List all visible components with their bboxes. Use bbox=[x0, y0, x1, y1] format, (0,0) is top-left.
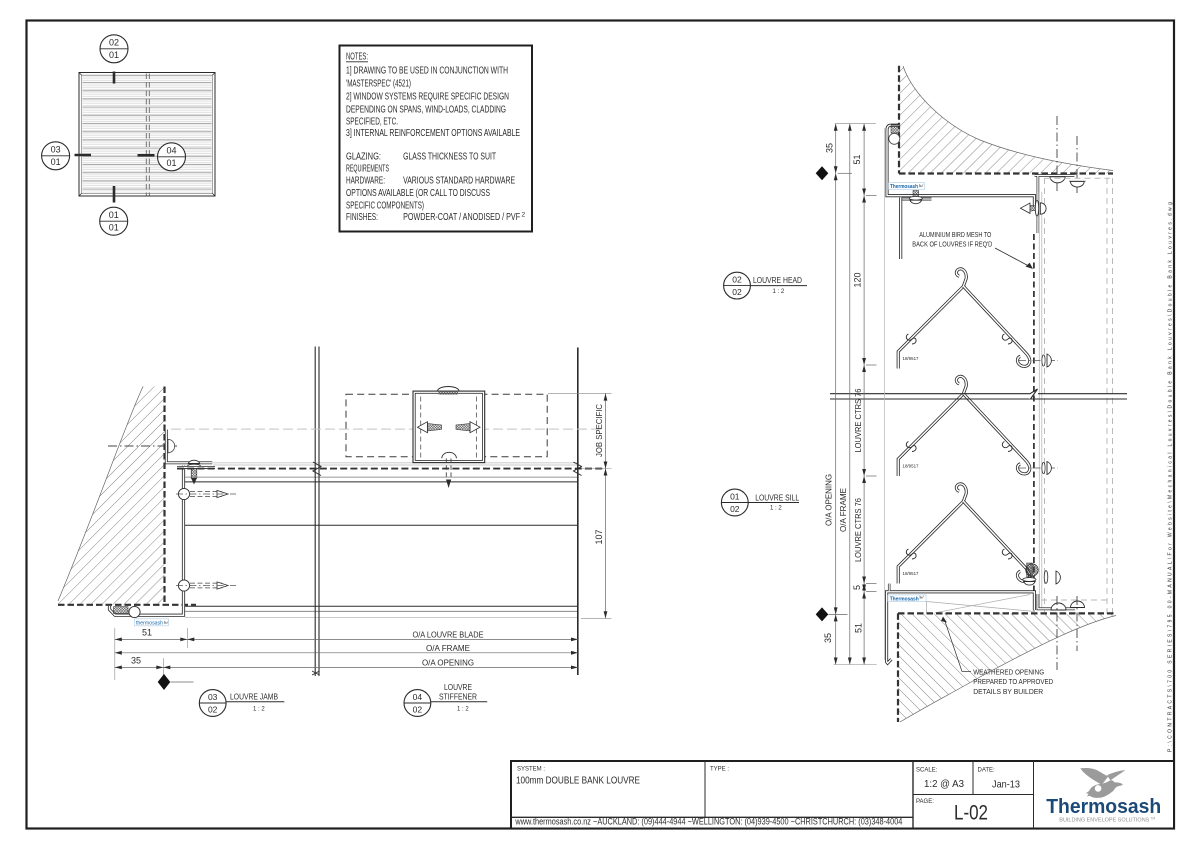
svg-text:REQUIREMENTS: REQUIREMENTS bbox=[346, 164, 389, 175]
svg-text:LOUVRE CTRS 76: LOUVRE CTRS 76 bbox=[853, 388, 863, 452]
svg-text:03: 03 bbox=[51, 145, 61, 155]
svg-text:NOTES:: NOTES: bbox=[346, 52, 368, 63]
svg-text:FINISHES:: FINISHES: bbox=[346, 212, 378, 223]
svg-text:02: 02 bbox=[732, 274, 742, 284]
svg-text:LOUVRE CTRS 76: LOUVRE CTRS 76 bbox=[853, 498, 863, 562]
svg-text:OPTIONS AVAILABLE (OR CALL TO: OPTIONS AVAILABLE (OR CALL TO DISCUSS bbox=[346, 188, 490, 199]
svg-text:thermosash: thermosash bbox=[136, 621, 163, 627]
svg-text:Thermosash: Thermosash bbox=[890, 184, 918, 190]
svg-text:02: 02 bbox=[208, 704, 218, 714]
svg-text:1 : 2: 1 : 2 bbox=[770, 506, 782, 512]
svg-text:SYSTEM :: SYSTEM : bbox=[517, 767, 545, 773]
svg-text:L-02: L-02 bbox=[954, 802, 988, 825]
svg-text:1 : 2: 1 : 2 bbox=[773, 289, 785, 295]
svg-text:JOB SPECIFIC: JOB SPECIFIC bbox=[594, 404, 604, 457]
svg-text:O/A LOUVRE BLADE: O/A LOUVRE BLADE bbox=[413, 629, 484, 639]
svg-text:03: 03 bbox=[208, 692, 218, 702]
svg-text:120: 120 bbox=[853, 272, 863, 287]
svg-text:1 : 2: 1 : 2 bbox=[457, 707, 469, 713]
svg-text:PREPARED TO APPROVED: PREPARED TO APPROVED bbox=[973, 677, 1053, 686]
svg-text:GLAZING:: GLAZING: bbox=[346, 152, 381, 163]
svg-text:DATE:: DATE: bbox=[978, 768, 996, 774]
svg-text:BUILDING ENVELOPE SOLUTIONS: BUILDING ENVELOPE SOLUTIONS bbox=[1059, 818, 1150, 824]
svg-text:LOUVRE: LOUVRE bbox=[444, 682, 472, 692]
svg-text:LOUVRE JAMB: LOUVRE JAMB bbox=[230, 691, 278, 701]
svg-text:Jan-13: Jan-13 bbox=[992, 779, 1020, 791]
svg-text:51: 51 bbox=[854, 623, 864, 633]
svg-text:VARIOUS STANDARD HARDWARE: VARIOUS STANDARD HARDWARE bbox=[403, 175, 515, 186]
svg-text:02: 02 bbox=[732, 287, 742, 297]
svg-text:HARDWARE:: HARDWARE: bbox=[346, 175, 385, 186]
svg-text:LOUVRE SILL: LOUVRE SILL bbox=[755, 492, 799, 502]
svg-text:TM: TM bbox=[1151, 817, 1156, 821]
svg-text:04: 04 bbox=[413, 692, 423, 702]
svg-text:P:\CONTRACTS\700 SERIES\795.00: P:\CONTRACTS\700 SERIES\795.00-MANUAL\Fo… bbox=[1168, 200, 1174, 752]
svg-text:35: 35 bbox=[131, 655, 141, 665]
svg-text:01: 01 bbox=[109, 223, 119, 233]
svg-text:02: 02 bbox=[730, 504, 740, 514]
svg-text:02: 02 bbox=[413, 704, 423, 714]
svg-text:O/A FRAME: O/A FRAME bbox=[838, 488, 848, 532]
svg-text:04: 04 bbox=[166, 146, 176, 156]
svg-text:2: 2 bbox=[522, 211, 526, 218]
svg-text:100mm DOUBLE BANK LOUVRE: 100mm DOUBLE BANK LOUVRE bbox=[516, 775, 640, 787]
svg-text:35: 35 bbox=[825, 143, 835, 153]
svg-text:18/9517: 18/9517 bbox=[903, 464, 919, 469]
svg-text:WEATHERED OPENING: WEATHERED OPENING bbox=[973, 668, 1044, 677]
svg-text:O/A OPENING: O/A OPENING bbox=[824, 474, 834, 526]
svg-text:35: 35 bbox=[823, 633, 833, 643]
svg-text:1 : 2: 1 : 2 bbox=[253, 707, 265, 713]
svg-text:BACK OF LOUVRES IF REQ'D: BACK OF LOUVRES IF REQ'D bbox=[912, 239, 992, 248]
svg-text:SPECIFIC COMPONENTS): SPECIFIC COMPONENTS) bbox=[346, 201, 424, 212]
svg-text:SCALE:: SCALE: bbox=[916, 768, 938, 774]
svg-text:01: 01 bbox=[109, 50, 119, 60]
svg-text:1:2 @ A3: 1:2 @ A3 bbox=[924, 778, 964, 790]
svg-text:TYPE :: TYPE : bbox=[710, 767, 729, 773]
svg-text:51: 51 bbox=[852, 154, 862, 164]
svg-text:18/9517: 18/9517 bbox=[903, 356, 919, 361]
svg-text:O/A OPENING: O/A OPENING bbox=[422, 657, 474, 667]
svg-text:02: 02 bbox=[109, 38, 119, 48]
svg-text:18/9517: 18/9517 bbox=[903, 571, 919, 576]
svg-text:ALUMINIUM BIRD MESH TO: ALUMINIUM BIRD MESH TO bbox=[919, 230, 991, 239]
svg-text:01: 01 bbox=[730, 491, 740, 501]
svg-text:01: 01 bbox=[109, 210, 119, 220]
svg-text:O/A FRAME: O/A FRAME bbox=[426, 643, 470, 653]
svg-text:LOUVRE HEAD: LOUVRE HEAD bbox=[753, 275, 802, 285]
svg-text:DETAILS BY BUILDER: DETAILS BY BUILDER bbox=[973, 687, 1043, 696]
svg-text:www.thermosash.co.nz ~AUCKLAN: www.thermosash.co.nz ~AUCKLAND: (09)444-… bbox=[515, 817, 903, 827]
svg-text:Thermosash: Thermosash bbox=[890, 596, 919, 602]
svg-text:01: 01 bbox=[166, 158, 176, 168]
svg-text:POWDER-COAT / ANODISED / PVF: POWDER-COAT / ANODISED / PVF bbox=[403, 212, 520, 223]
svg-text:PAGE:: PAGE: bbox=[916, 799, 934, 805]
svg-text:107: 107 bbox=[594, 529, 604, 544]
svg-text:Thermosash: Thermosash bbox=[1046, 795, 1161, 818]
svg-text:SPECIFIED, ETC.: SPECIFIED, ETC. bbox=[346, 116, 398, 127]
svg-text:01: 01 bbox=[51, 157, 61, 167]
svg-text:1] DRAWING TO BE USED IN CONJU: 1] DRAWING TO BE USED IN CONJUNCTION WIT… bbox=[346, 66, 508, 77]
svg-text:'MASTERSPEC' (4521): 'MASTERSPEC' (4521) bbox=[346, 79, 411, 90]
svg-text:DEPENDING ON SPANS, WIND-LOADS: DEPENDING ON SPANS, WIND-LOADS, CLADDING bbox=[346, 105, 506, 116]
svg-text:5: 5 bbox=[852, 585, 862, 590]
svg-text:2] WINDOW SYSTEMS REQUIRE SPEC: 2] WINDOW SYSTEMS REQUIRE SPECIFIC DESIG… bbox=[346, 92, 509, 103]
svg-text:STIFFENER: STIFFENER bbox=[439, 691, 477, 701]
svg-text:GLASS THICKNESS TO SUIT: GLASS THICKNESS TO SUIT bbox=[403, 152, 496, 163]
svg-text:3] INTERNAL REINFORCEMENT OPTI: 3] INTERNAL REINFORCEMENT OPTIONS AVAILA… bbox=[346, 128, 520, 139]
svg-text:51: 51 bbox=[142, 628, 152, 638]
